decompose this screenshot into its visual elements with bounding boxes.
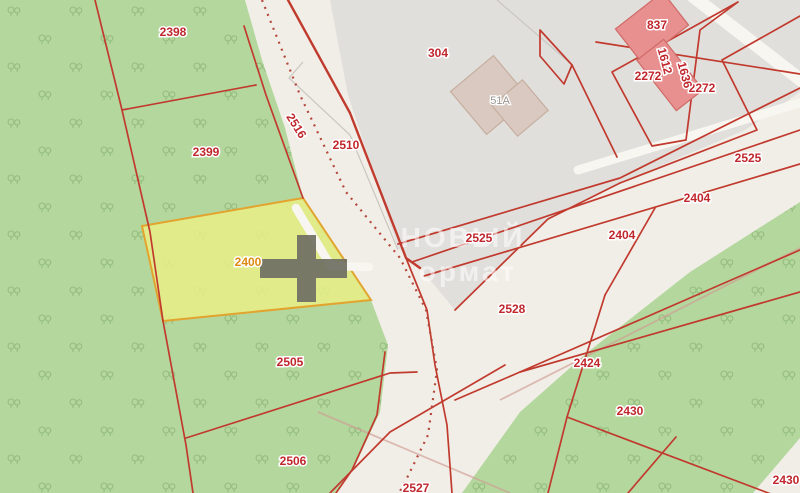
building-label-51a: 51А bbox=[490, 95, 510, 107]
parcel-label-2506: 2506 bbox=[280, 454, 307, 468]
parcel-label-2430-b: 2430 bbox=[773, 473, 800, 487]
parcel-label-2525-b: 2525 bbox=[735, 151, 762, 165]
parcel-label-2404-b: 2404 bbox=[609, 228, 636, 242]
watermark-line2: ормат bbox=[419, 256, 517, 287]
parcel-label-2398: 2398 bbox=[160, 25, 187, 39]
parcel-label-2525-a: 2525 bbox=[466, 231, 493, 245]
parcel-label-2424: 2424 bbox=[574, 356, 601, 370]
parcel-label-2400: 2400 bbox=[235, 255, 262, 269]
parcel-label-2272-a: 2272 bbox=[635, 69, 662, 83]
parcel-label-2510: 2510 bbox=[333, 138, 360, 152]
parcel-label-2528: 2528 bbox=[499, 302, 526, 316]
parcel-label-2430-a: 2430 bbox=[617, 404, 644, 418]
parcel-label-304: 304 bbox=[428, 46, 448, 60]
parcel-label-2527: 2527 bbox=[403, 481, 430, 493]
building-label-837: 837 bbox=[647, 18, 667, 32]
parcel-label-2404-a: 2404 bbox=[684, 191, 711, 205]
cadastral-map-canvas[interactable]: НОВЫЙ ормат 2398 2399 2400 2505 2506 251… bbox=[0, 0, 800, 493]
parcel-label-2505: 2505 bbox=[277, 355, 304, 369]
watermark-line1: НОВЫЙ bbox=[401, 221, 526, 253]
cadastral-map-viewport[interactable]: НОВЫЙ ормат 2398 2399 2400 2505 2506 251… bbox=[0, 0, 800, 493]
parcel-label-2399: 2399 bbox=[193, 145, 220, 159]
